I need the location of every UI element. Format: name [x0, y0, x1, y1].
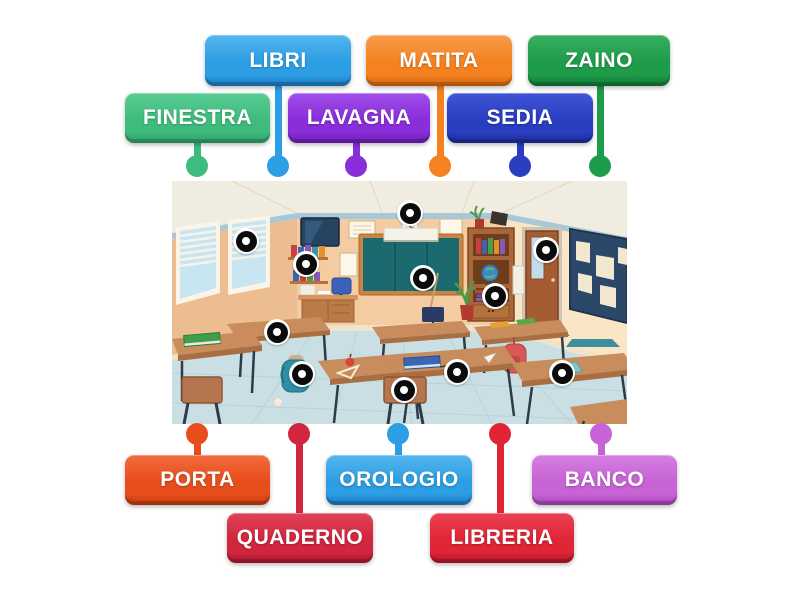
- label-anchor-dot-finestra: [186, 155, 208, 177]
- label-chip-banco[interactable]: BANCO: [532, 455, 677, 505]
- label-stem-libri: [275, 80, 282, 166]
- bulletin-board: [570, 229, 627, 323]
- marker-ring: [447, 362, 468, 383]
- label-anchor-dot-libri: [267, 155, 289, 177]
- door-poster: [513, 266, 524, 294]
- marker-ring: [485, 286, 506, 307]
- marker-ring: [296, 254, 317, 275]
- answer-marker-10[interactable]: [391, 377, 417, 403]
- label-chip-finestra[interactable]: FINESTRA: [125, 93, 270, 143]
- label-chip-zaino[interactable]: ZAINO: [528, 35, 670, 86]
- label-anchor-dot-porta: [186, 423, 208, 445]
- activity-canvas: FINESTRALIBRILAVAGNAMATITASEDIAZAINOPORT…: [0, 0, 800, 600]
- label-anchor-dot-banco: [590, 423, 612, 445]
- label-anchor-dot-orologio: [387, 423, 409, 445]
- window-left: [176, 221, 220, 305]
- answer-marker-8[interactable]: [289, 361, 315, 387]
- tv-screen: [301, 218, 339, 246]
- marker-hole: [419, 274, 427, 282]
- answer-marker-3[interactable]: [397, 200, 423, 226]
- marker-ring: [536, 240, 557, 261]
- label-anchor-dot-lavagna: [345, 155, 367, 177]
- label-anchor-dot-sedia: [509, 155, 531, 177]
- marker-ring: [400, 203, 421, 224]
- answer-marker-11[interactable]: [549, 360, 575, 386]
- marker-ring: [413, 268, 434, 289]
- label-anchor-dot-matita: [429, 155, 451, 177]
- label-chip-porta[interactable]: PORTA: [125, 455, 270, 505]
- answer-marker-2[interactable]: [293, 251, 319, 277]
- label-chip-matita[interactable]: MATITA: [366, 35, 512, 86]
- marker-ring: [552, 363, 573, 384]
- label-stem-zaino: [597, 80, 604, 166]
- answer-marker-7[interactable]: [264, 319, 290, 345]
- ball: [274, 398, 283, 407]
- label-stem-libreria: [497, 434, 504, 519]
- marker-hole: [400, 386, 408, 394]
- answer-marker-5[interactable]: [533, 237, 559, 263]
- label-anchor-dot-zaino: [589, 155, 611, 177]
- label-chip-libri[interactable]: LIBRI: [205, 35, 351, 86]
- label-anchor-dot-libreria: [489, 423, 511, 445]
- marker-ring: [292, 364, 313, 385]
- marker-hole: [302, 260, 310, 268]
- label-chip-lavagna[interactable]: LAVAGNA: [288, 93, 430, 143]
- label-chip-orologio[interactable]: OROLOGIO: [326, 455, 472, 505]
- label-chip-quaderno[interactable]: QUADERNO: [227, 513, 373, 563]
- label-chip-libreria[interactable]: LIBRERIA: [430, 513, 574, 563]
- marker-hole: [298, 370, 306, 378]
- marker-ring: [267, 322, 288, 343]
- marker-hole: [273, 328, 281, 336]
- marker-ring: [236, 231, 257, 252]
- marker-hole: [242, 237, 250, 245]
- label-stem-quaderno: [296, 434, 303, 519]
- answer-marker-1[interactable]: [233, 228, 259, 254]
- marker-ring: [394, 380, 415, 401]
- answer-marker-6[interactable]: [482, 283, 508, 309]
- answer-marker-4[interactable]: [410, 265, 436, 291]
- marker-hole: [491, 292, 499, 300]
- label-anchor-dot-quaderno: [288, 423, 310, 445]
- label-stem-matita: [437, 80, 444, 166]
- marker-hole: [558, 369, 566, 377]
- marker-hole: [453, 368, 461, 376]
- answer-marker-9[interactable]: [444, 359, 470, 385]
- label-chip-sedia[interactable]: SEDIA: [447, 93, 593, 143]
- marker-hole: [406, 209, 414, 217]
- marker-hole: [542, 246, 550, 254]
